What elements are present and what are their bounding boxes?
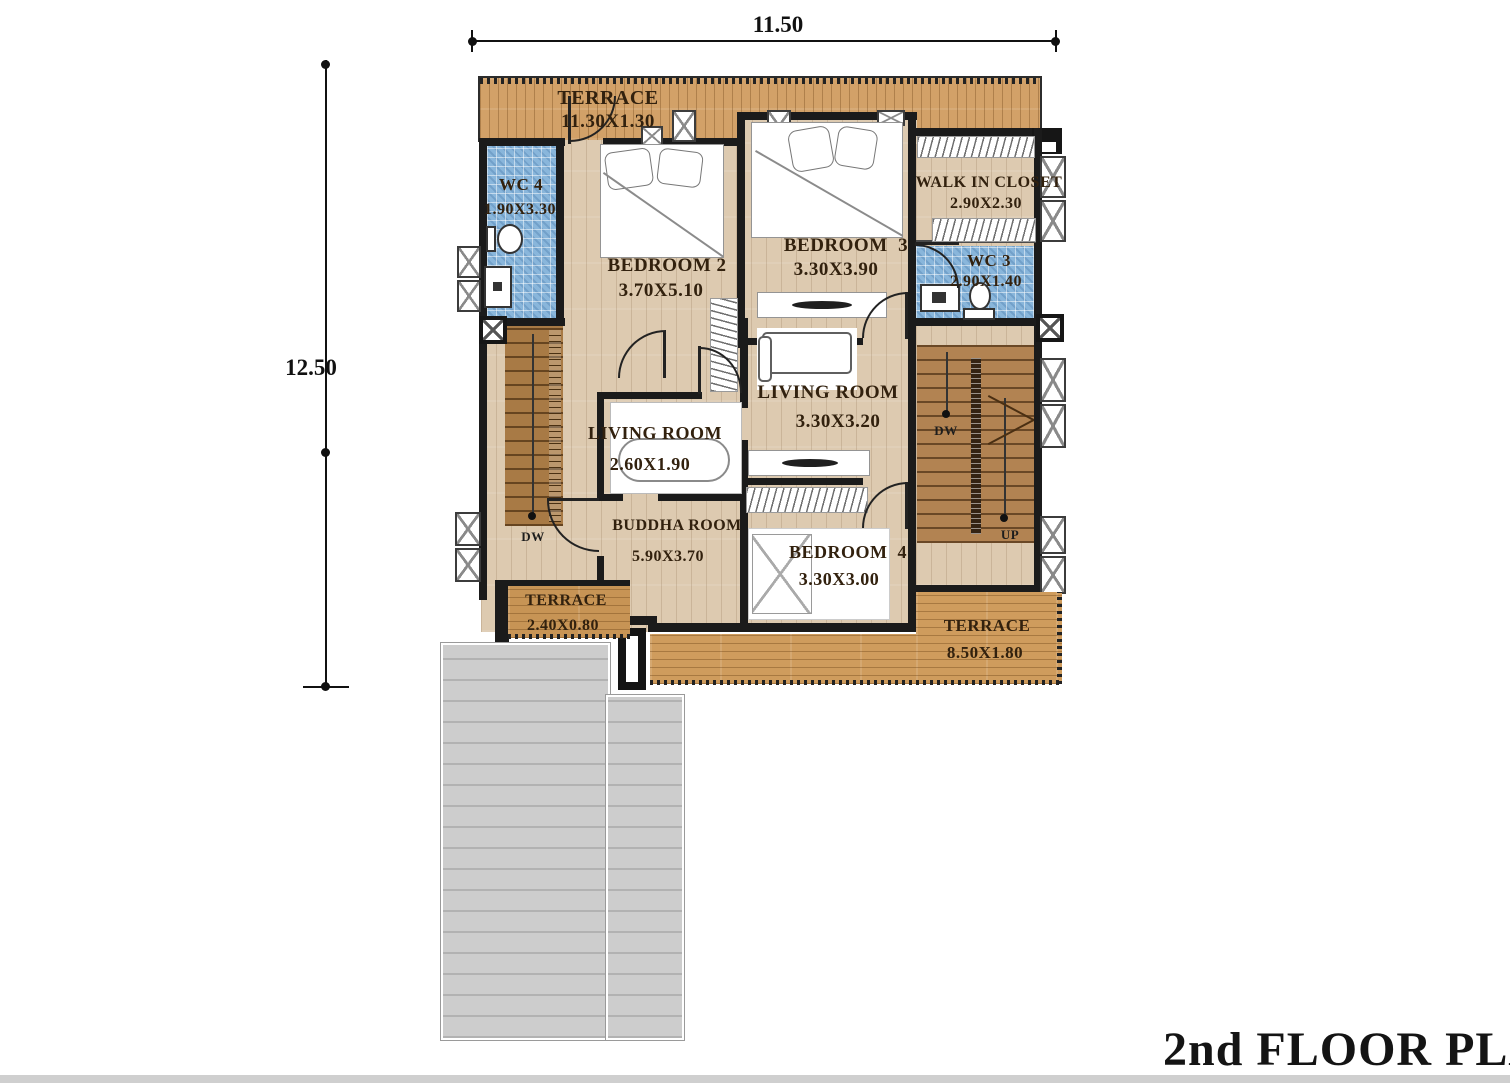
wall [481,138,565,146]
room-label-bedroom3: BEDROOM 3 [784,236,908,255]
window-icon [1040,516,1066,554]
stair-right-up-dot [1000,514,1008,522]
wall [648,623,916,632]
stair-right-dw-label: DW [934,424,957,437]
window-icon [1040,404,1066,448]
door-leaf [547,498,599,501]
room-size-bedroom4: 3.30X3.00 [799,570,880,588]
pillow-icon [787,125,836,174]
room-size-walk-in-closet: 2.90X2.30 [950,196,1022,212]
room-label-terrace-br: TERRACE [944,617,1031,634]
window-icon [457,280,481,312]
room-size-wc3: 2.90X1.40 [950,274,1022,290]
stair-left-dw-label: DW [521,530,544,543]
toilet-icon [497,224,523,254]
room-label-terrace-bl: TERRACE [525,593,607,609]
wardrobe-hatch [746,487,868,513]
toilet-base-icon [963,308,995,320]
wall [658,494,745,501]
closet-hatch [932,218,1036,242]
window-x-icon [483,320,503,340]
roof-lower [443,645,608,1038]
window-x-icon [1040,318,1060,338]
stair-right-up-label: UP [1001,528,1019,541]
room-label-buddha: BUDDHA ROOM [612,518,742,534]
stair-right-up-line [1004,398,1006,518]
terrace-bl-edge-ticks [508,634,630,639]
room-size-wc4: 1.90X3.30 [484,202,556,218]
door-leaf [915,242,959,245]
room-size-terrace-br: 8.50X1.80 [947,644,1023,661]
room-label-wc3: WC 3 [967,252,1011,269]
door-leaf [698,346,701,394]
pillow-icon [833,125,879,171]
room-size-bedroom3: 3.30X3.90 [794,260,879,279]
sofa-back [762,332,852,374]
tv-icon [782,459,838,467]
top-dimension-line [472,40,1057,42]
window-icon [1040,200,1066,242]
page-title: 2nd FLOOR PLAN [1163,1022,1510,1077]
wall-column [495,580,509,644]
window-icon [1040,358,1066,402]
window-icon [1040,556,1066,594]
pillow-icon [656,147,704,188]
left-dimension-dot-mid [321,448,330,457]
stair-left-path-line [532,334,534,514]
room-label-walk-in-closet: WALK IN CLOSET [916,175,1063,191]
wall [737,112,745,348]
room-size-bedroom2: 3.70X5.10 [619,281,704,300]
room-size-terrace-bl: 2.40X0.80 [527,618,599,634]
toilet-tank-icon [486,226,496,252]
faucet-icon [493,282,502,291]
room-label-bedroom4: BEDROOM 4 [789,543,907,561]
left-dimension-dot-top [321,60,330,69]
top-dimension-dot-right [1051,37,1060,46]
stair-right-divider [971,358,981,534]
left-dimension-label: 12.50 [285,355,337,381]
terrace-br-edge-ticks [650,680,1062,685]
door-leaf [663,331,666,378]
terrace-br-edge-ticks-right [1057,592,1062,684]
window-icon [455,548,481,582]
sofa-arm [758,336,772,382]
wall [740,318,748,408]
roof-lower-step [608,697,682,1038]
page-edge [0,1075,1510,1083]
faucet-icon [932,292,946,303]
room-size-living-left: 2.60X1.90 [610,455,691,473]
room-label-wc4: WC 4 [499,176,543,193]
wall [912,128,1038,136]
top-dimension-dot-left [468,37,477,46]
stair-left-rail [549,330,561,522]
terrace-br-deck-right [916,592,1062,684]
wall [597,392,702,399]
room-label-living-left: LIVING ROOM [588,424,722,442]
wall [597,392,604,500]
stair-right-down-dot [942,410,950,418]
wall-corner-notch [1040,142,1056,152]
pillow-icon [604,147,655,191]
terrace-br-deck-left [650,634,916,684]
window-icon [455,512,481,546]
tv-icon [792,301,852,309]
floor-plan-canvas: 11.50 12.50 [0,0,1510,1083]
top-dimension-label: 11.50 [753,12,803,38]
wall [743,478,863,485]
room-size-terrace-top: 11.30X1.30 [561,112,655,131]
window-icon [457,246,481,278]
closet-hatch [917,136,1035,158]
room-size-buddha: 5.90X3.70 [632,549,704,565]
left-dimension-tick-bottom [303,686,349,688]
room-label-living-right: LIVING ROOM [757,383,898,402]
vent-window-icon [672,110,696,142]
wall [908,112,916,348]
stair-left-path-dot [528,512,536,520]
room-label-bedroom2: BEDROOM 2 [607,256,726,275]
door-leaf [905,292,908,339]
terrace-top-edge-ticks [480,78,1040,84]
door-leaf [905,482,908,529]
wall [556,138,564,326]
room-size-living-right: 3.30X3.20 [796,412,881,431]
stair-right-down-line [946,352,948,414]
room-label-terrace-top: TERRACE [557,88,658,108]
